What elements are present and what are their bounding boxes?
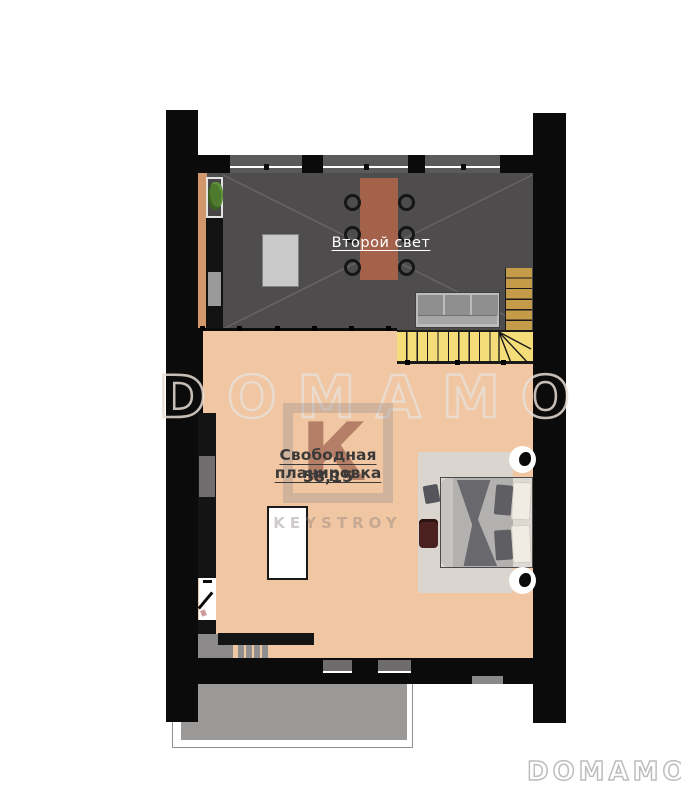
cabinet-shelf <box>208 272 221 306</box>
upper-room-label: Второй свет <box>303 235 459 251</box>
window-icon <box>230 155 302 173</box>
bench-cushion <box>423 484 441 504</box>
sofa <box>415 292 500 328</box>
door-lintel <box>203 580 212 583</box>
stair-winders <box>397 332 533 363</box>
railing-post <box>386 326 391 331</box>
nightstand <box>509 567 536 594</box>
pillow-icon <box>511 525 532 564</box>
railing-post <box>349 326 354 331</box>
lamp-icon <box>519 452 531 466</box>
duvet-fold <box>441 478 453 567</box>
sofa-seat <box>418 295 443 315</box>
terrace-outline <box>172 684 413 748</box>
railing-post <box>237 326 242 331</box>
pillow-icon <box>494 529 513 560</box>
builder-logo-text: KEYSTROY <box>255 514 420 532</box>
side-table <box>262 234 299 287</box>
ottoman-bag <box>419 519 438 548</box>
wall-pier <box>198 155 230 173</box>
railing-post <box>275 326 280 331</box>
corner-brand-watermark: DOMAMO <box>527 757 681 787</box>
main-room-area: 58,15 <box>238 467 418 486</box>
chair-icon <box>398 194 415 211</box>
planter-box <box>206 177 223 218</box>
doormat-icon <box>200 609 207 616</box>
pillow-icon <box>511 482 532 521</box>
kitchen-counter <box>218 633 314 645</box>
window-icon <box>323 660 352 673</box>
upper-room-floor: Второй свет <box>198 173 533 330</box>
nightstand <box>509 446 536 473</box>
wall-pier <box>302 155 323 173</box>
stair-flight-upper <box>505 268 532 330</box>
void-railing <box>198 328 397 331</box>
terrace-deck <box>181 684 407 740</box>
dining-table <box>360 178 398 280</box>
lamp-icon <box>519 573 531 587</box>
bed <box>440 477 533 568</box>
railing-post <box>312 326 317 331</box>
wall-pier <box>408 155 425 173</box>
chair-icon <box>344 194 361 211</box>
window-icon <box>378 660 411 673</box>
window-icon <box>425 155 500 173</box>
stair-flight-lower <box>397 330 533 364</box>
wall-cabinet-panel <box>199 456 215 497</box>
entry-door-niche <box>199 578 216 622</box>
railing-post <box>200 326 205 331</box>
top-window-wall <box>198 155 533 173</box>
chair-icon <box>344 259 361 276</box>
floorplan-canvas: Второй свет <box>0 0 681 800</box>
wall-pier <box>500 155 533 173</box>
chair-icon <box>398 259 415 276</box>
window-sill <box>472 676 503 684</box>
window-icon <box>323 155 408 173</box>
sofa-seat <box>445 295 470 315</box>
pillow-icon <box>494 484 514 515</box>
door-leaf-icon <box>198 591 214 609</box>
tall-cabinet <box>206 218 223 330</box>
sofa-seat <box>472 295 498 315</box>
plant-icon <box>208 182 223 210</box>
sofa-base <box>418 315 497 324</box>
